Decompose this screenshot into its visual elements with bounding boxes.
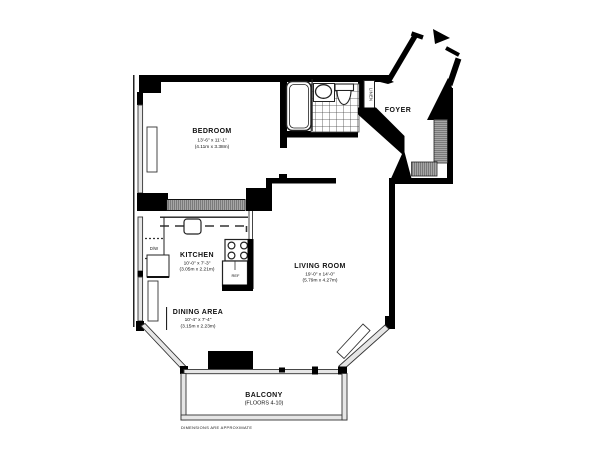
svg-text:D/W: D/W xyxy=(150,246,158,251)
svg-text:FOYER: FOYER xyxy=(385,107,412,114)
svg-text:10'-4" x 7'-4": 10'-4" x 7'-4" xyxy=(185,317,212,323)
svg-text:13'-6" x 11'-1": 13'-6" x 11'-1" xyxy=(197,138,226,144)
svg-text:(4.11m x 3.38m): (4.11m x 3.38m) xyxy=(195,144,230,150)
svg-text:LIVING ROOM: LIVING ROOM xyxy=(294,263,345,270)
svg-text:(FLOORS 4-10): (FLOORS 4-10) xyxy=(245,401,284,407)
svg-text:LINEN: LINEN xyxy=(369,88,374,101)
svg-text:(3.15m x 2.23m): (3.15m x 2.23m) xyxy=(181,324,216,330)
svg-text:BEDROOM: BEDROOM xyxy=(192,128,231,135)
svg-text:DINING AREA: DINING AREA xyxy=(173,309,223,316)
svg-text:BALCONY: BALCONY xyxy=(245,392,282,399)
svg-text:(3.05m x 2.21m): (3.05m x 2.21m) xyxy=(180,267,215,273)
svg-text:(5.79m x 4.27m): (5.79m x 4.27m) xyxy=(303,278,338,284)
svg-text:19'-0" x 14'-0": 19'-0" x 14'-0" xyxy=(305,272,335,278)
svg-text:DIMENSIONS ARE APPROXIMATE: DIMENSIONS ARE APPROXIMATE xyxy=(181,425,252,430)
svg-text:REF: REF xyxy=(232,273,241,278)
svg-text:KITCHEN: KITCHEN xyxy=(180,252,214,259)
svg-text:10'-0" x 7'-3": 10'-0" x 7'-3" xyxy=(184,261,211,267)
